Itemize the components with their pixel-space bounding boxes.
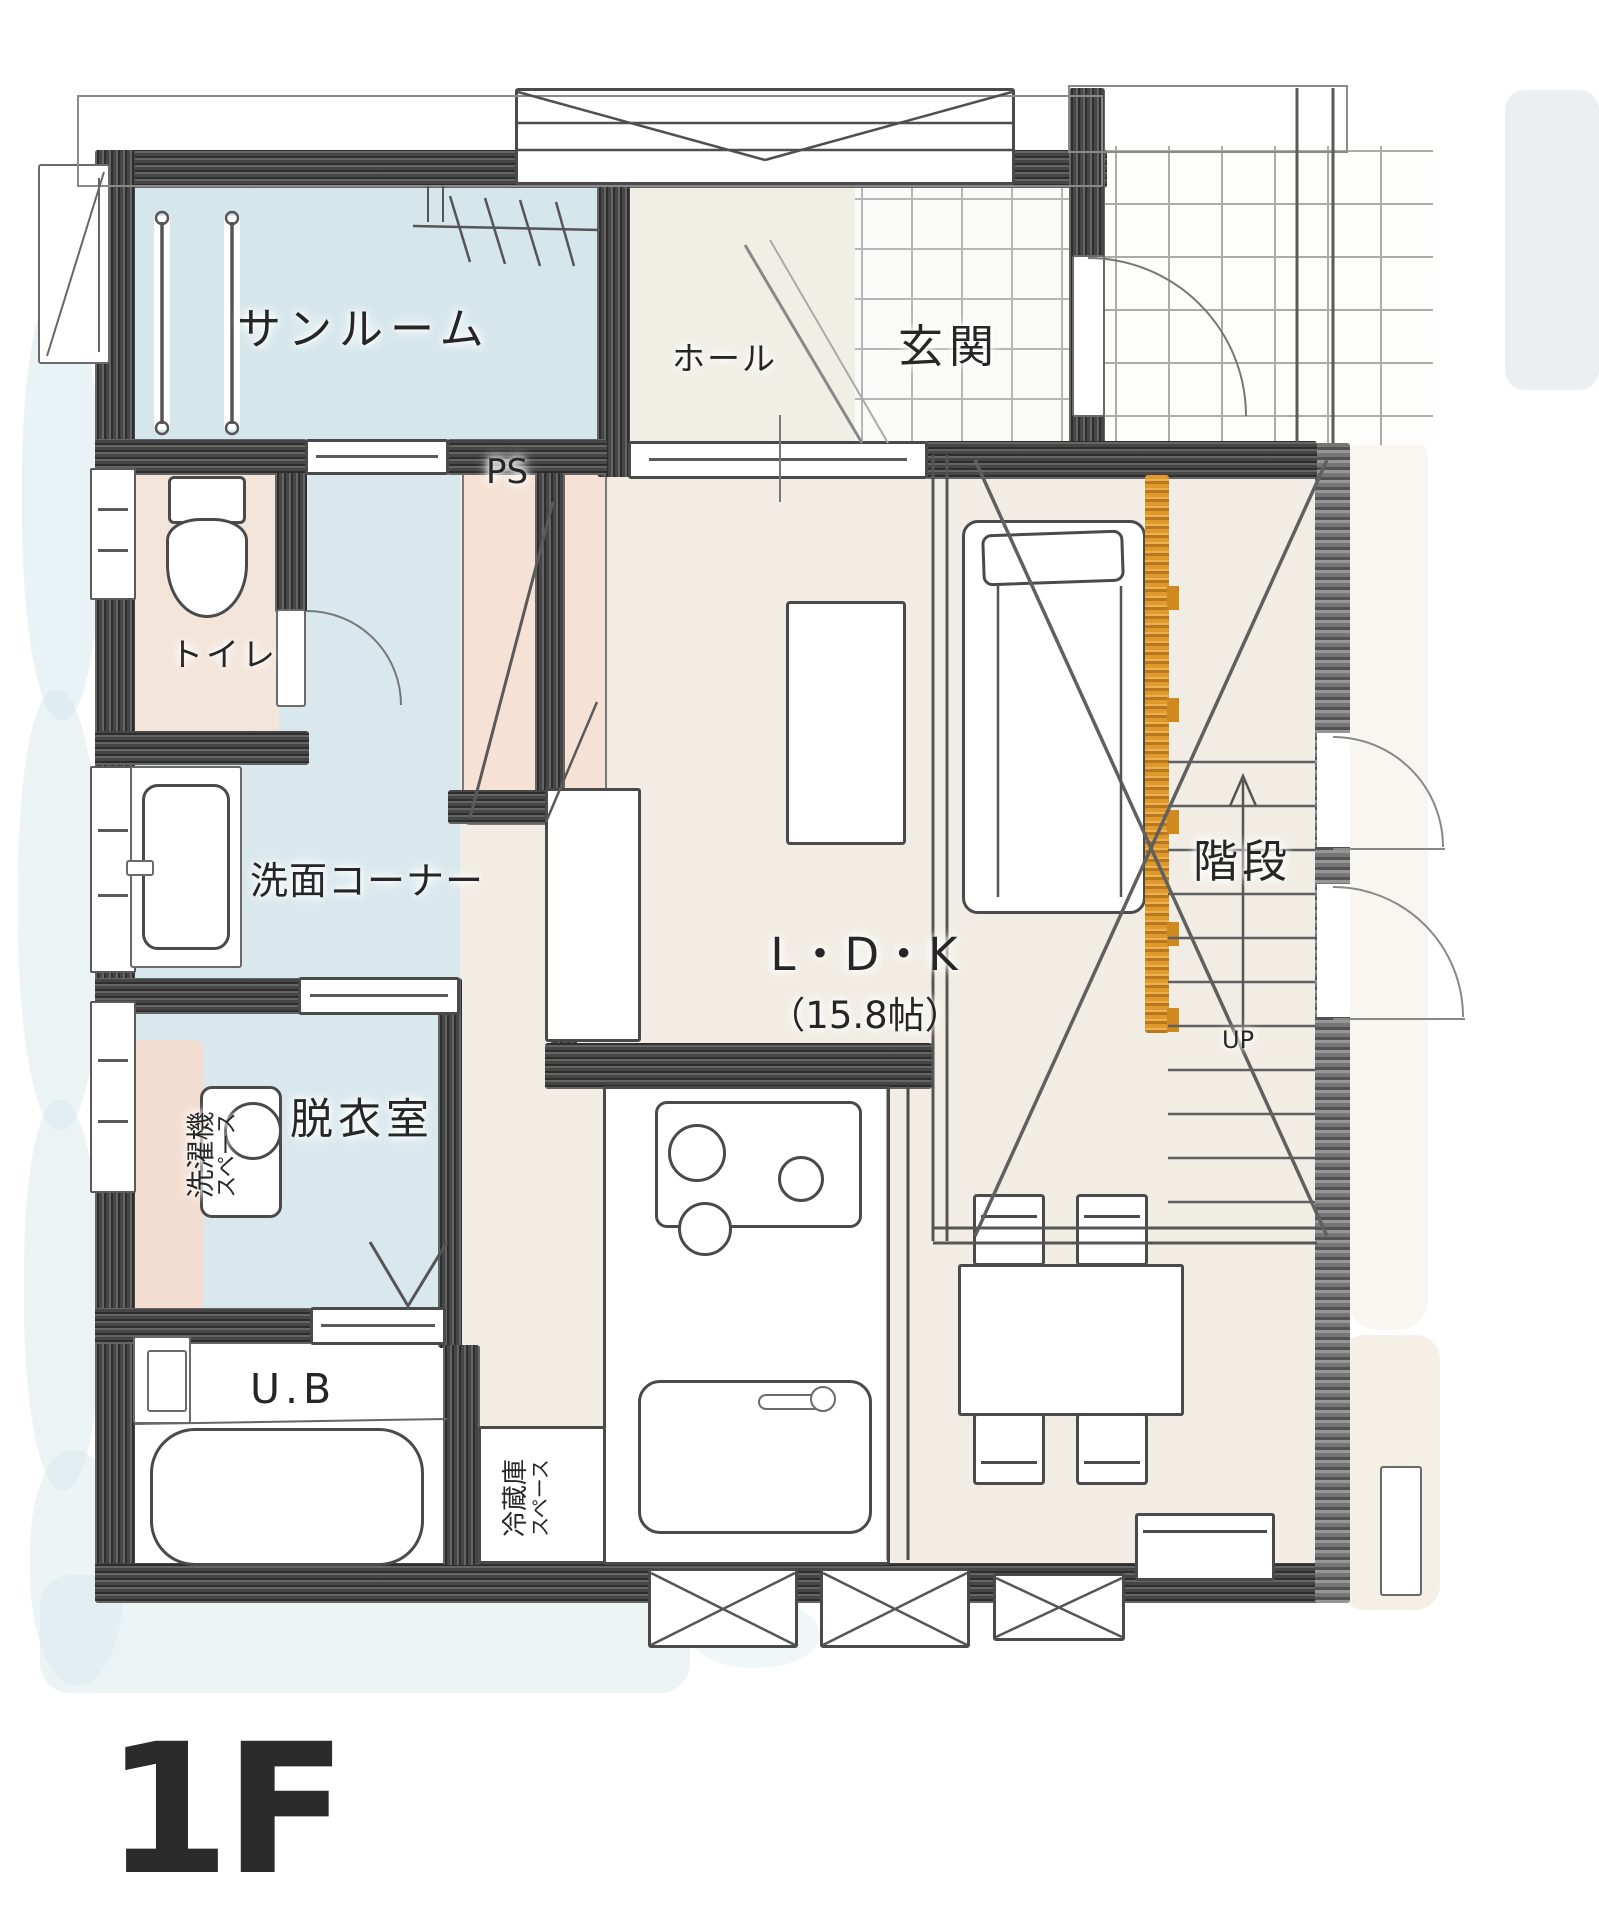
wall-hall-ldk [925, 441, 1317, 479]
door-leaf-entrance [1072, 255, 1105, 417]
dining-chair [973, 1194, 1045, 1266]
dining-chair [1076, 1413, 1148, 1485]
stairs-accent-nub [1167, 586, 1179, 610]
window-bottom-1 [648, 1568, 798, 1648]
floor-title-1f: 1F [105, 1706, 341, 1915]
sofa-pillow [981, 530, 1125, 587]
dining-chair [973, 1413, 1045, 1485]
label-dressing-room: 脱衣室 [290, 1085, 434, 1147]
label-fridge-line1: 冷蔵庫 [503, 1428, 530, 1568]
sliding-door-dressing [298, 977, 460, 1015]
label-fridge-line2: スペース [530, 1428, 551, 1568]
window-bay-top [515, 88, 1015, 185]
label-stairs-up: UP [1222, 1026, 1254, 1054]
label-hall: ホール [672, 332, 777, 380]
label-ldk: L・D・K （15.8帖） [745, 918, 985, 1039]
sliding-door-unitbath [310, 1307, 446, 1345]
label-laundry-space: 洗濯機 スペース [186, 1080, 250, 1230]
tv-board [545, 788, 641, 1042]
low-cabinet [1135, 1513, 1275, 1581]
toilet-tank [168, 476, 246, 524]
stairs-accent-nub [1167, 810, 1179, 834]
kitchen-sink [638, 1380, 872, 1534]
stove-burner-3 [678, 1202, 732, 1256]
porch-floor [1105, 146, 1433, 445]
wall-dressing-right [438, 978, 462, 1348]
window-left-toilet [90, 468, 136, 600]
stove-burner-2 [778, 1156, 824, 1202]
stairs-accent-nub [1167, 1008, 1179, 1032]
sliding-door-hall-ldk [628, 441, 928, 479]
label-pipe-space: PS [486, 452, 528, 492]
closet-hatch-strip [535, 473, 565, 821]
label-sunroom: サンルーム [237, 293, 491, 357]
label-fridge-space: 冷蔵庫 スペース [503, 1428, 563, 1568]
window-bottom-3 [993, 1573, 1125, 1641]
window-bottom-2 [820, 1568, 970, 1648]
stairs-accent-nub [1167, 922, 1179, 946]
washbasin-faucet [126, 860, 154, 876]
exterior-unit-box [1380, 1466, 1422, 1596]
label-unit-bath: U.B [250, 1365, 336, 1413]
door-gap-right-2 [1317, 884, 1350, 1017]
dining-chair [1076, 1194, 1148, 1266]
wall-dressing-bottom [95, 1308, 312, 1344]
bathtub [150, 1428, 424, 1566]
watercolor-blob [1505, 90, 1599, 390]
label-ldk-name: L・D・K [745, 918, 985, 983]
wall-toilet-right [275, 473, 307, 613]
wall-kitchen-top [545, 1043, 932, 1089]
stairs-accent-wall [1145, 475, 1169, 1033]
wall-right [1315, 443, 1350, 1603]
sliding-door-sunroom [305, 439, 449, 475]
label-stairs: 階段 [1193, 825, 1291, 890]
label-wash-corner: 洗面コーナー [250, 850, 484, 905]
label-laundry-line1: 洗濯機 [186, 1080, 216, 1230]
stove-burner-1 [668, 1124, 726, 1182]
label-ldk-size: （15.8帖） [745, 985, 985, 1039]
door-leaf-toilet [276, 609, 306, 707]
stairs-accent-nub [1167, 698, 1179, 722]
wall-toilet-bottom [95, 731, 309, 765]
dining-table [958, 1264, 1184, 1416]
door-gap-right-1 [1317, 733, 1350, 847]
watercolor-blob [1348, 430, 1428, 1330]
window-sunroom-left [38, 164, 110, 364]
kitchen-faucet-base [810, 1386, 836, 1412]
label-laundry-line2: スペース [216, 1080, 239, 1230]
label-toilet: トイレ [170, 628, 278, 676]
label-entrance: 玄関 [898, 310, 1000, 375]
bath-counter-inner [147, 1350, 187, 1412]
washbasin-sink [142, 784, 230, 950]
floor-plan-1f: サンルーム ホール 玄関 PS トイレ 洗面コーナー 脱衣室 洗濯機 スペース … [0, 0, 1599, 1920]
wall-sunroom-hall [597, 185, 630, 477]
living-table [786, 601, 906, 845]
wall-unitbath-right [443, 1345, 480, 1565]
window-left-dressing [90, 1001, 136, 1193]
